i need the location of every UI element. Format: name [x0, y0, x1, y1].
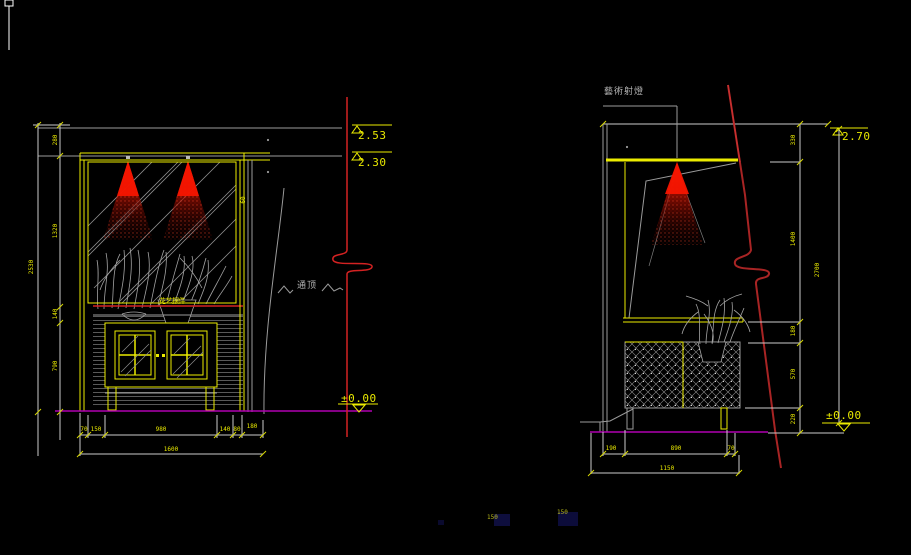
wall-note-label[interactable]: 通顶: [297, 282, 317, 291]
dim-text[interactable]: 890: [665, 446, 687, 452]
cad-viewport: 2.53 2.30 ±0.00 280 1320 140 790 2530 60…: [0, 0, 911, 555]
level-annotation-270[interactable]: 2.70: [842, 131, 871, 142]
dim-total-text[interactable]: 1600: [160, 447, 182, 453]
dim-text[interactable]: 1400: [791, 226, 797, 252]
dim-text[interactable]: 1320: [53, 218, 59, 244]
level-annotation-230[interactable]: 2.30: [358, 157, 387, 168]
dim-text[interactable]: 70: [720, 446, 742, 452]
left-plants[interactable]: [97, 248, 232, 323]
dim-text[interactable]: 220: [791, 406, 797, 432]
spotlight-label[interactable]: 藝術射燈: [604, 88, 644, 97]
level-annotation-253[interactable]: 2.53: [358, 130, 387, 141]
dim-text[interactable]: 570: [791, 361, 797, 387]
dim-total-text[interactable]: 2530: [29, 254, 35, 280]
cad-linework: [0, 0, 911, 555]
left-break-line[interactable]: [333, 97, 372, 437]
right-section-cut-line[interactable]: [728, 85, 781, 468]
dim-text[interactable]: 790: [53, 353, 59, 379]
spotlight-leader[interactable]: [603, 106, 677, 158]
footer-note: 150: [557, 510, 568, 516]
dim-text[interactable]: 60: [241, 187, 247, 213]
right-counter[interactable]: [623, 318, 743, 322]
right-dimensions[interactable]: [591, 124, 844, 474]
footer-note: 150: [487, 515, 498, 521]
dim-text[interactable]: 980: [150, 427, 172, 433]
right-level-markers[interactable]: [822, 128, 870, 431]
dim-text[interactable]: 150: [85, 427, 107, 433]
dim-text[interactable]: 280: [53, 127, 59, 153]
left-spotlight-cones[interactable]: [103, 156, 213, 240]
dim-text[interactable]: 140: [53, 301, 59, 327]
right-dimension-ticks: [588, 121, 842, 476]
dim-text[interactable]: 190: [600, 446, 622, 452]
level-annotation-zero-left[interactable]: ±0.00: [341, 393, 377, 404]
dim-total-text[interactable]: 1150: [656, 466, 678, 472]
level-annotation-zero-right[interactable]: ±0.00: [826, 410, 862, 421]
dim-total-text[interactable]: 2700: [815, 257, 821, 283]
dim-text[interactable]: 180: [241, 424, 263, 430]
left-wall-return[interactable]: [248, 139, 284, 414]
dim-text[interactable]: 180: [791, 318, 797, 344]
decor-label[interactable]: 花艺摆件: [159, 298, 185, 305]
crosshair-cursor: [5, 0, 13, 50]
dim-text[interactable]: 330: [791, 127, 797, 153]
left-ceiling-lines[interactable]: [38, 128, 342, 156]
right-spotlight-cone[interactable]: [651, 162, 703, 245]
